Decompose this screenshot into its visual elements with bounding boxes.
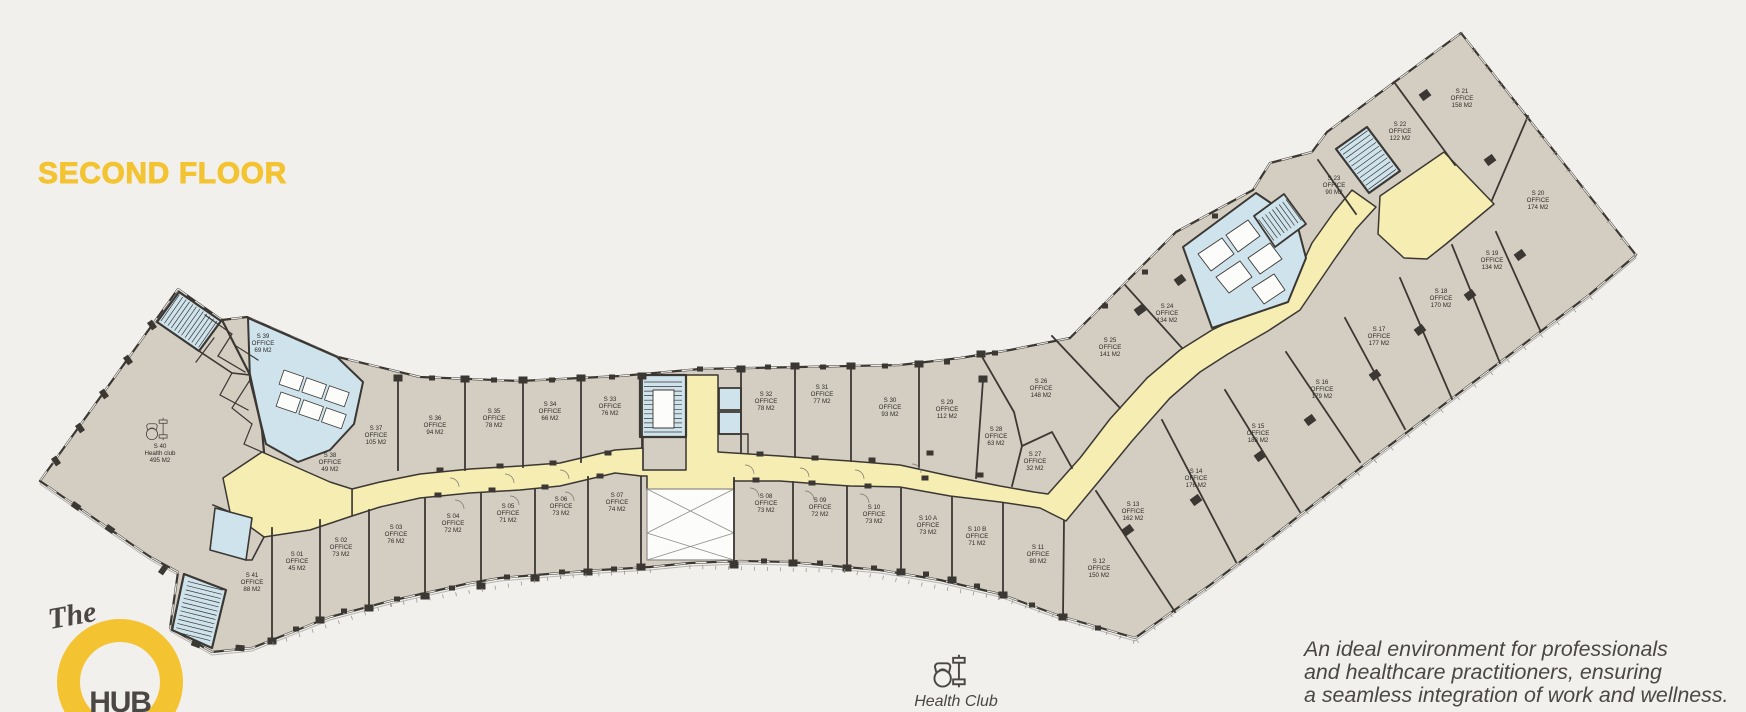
svg-text:SECOND FLOOR: SECOND FLOOR xyxy=(38,157,287,190)
svg-text:S 10 AOFFICE73 M2: S 10 AOFFICE73 M2 xyxy=(917,515,940,536)
svg-text:S 10 BOFFICE71 M2: S 10 BOFFICE71 M2 xyxy=(966,526,989,547)
svg-text:HUB: HUB xyxy=(89,686,151,712)
svg-text:Health Club: Health Club xyxy=(914,693,998,710)
